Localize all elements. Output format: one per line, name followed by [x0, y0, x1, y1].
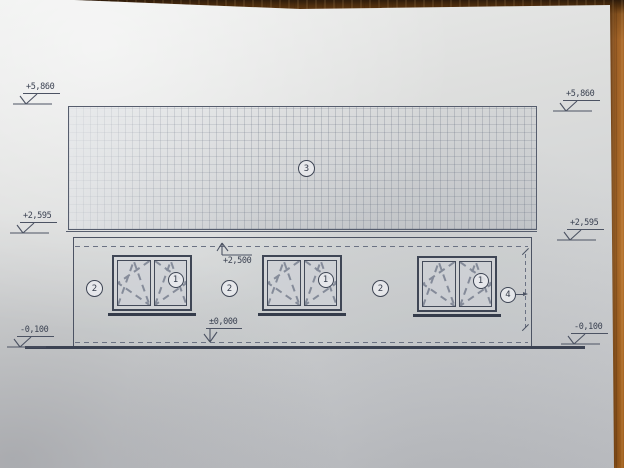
level-arrow-up-icon — [214, 242, 256, 256]
ceiling-level-dashed-line — [75, 246, 528, 247]
level-arrow-icon — [552, 100, 600, 112]
pipe-leader-arrow-icon — [523, 292, 528, 296]
window-sill — [413, 314, 501, 317]
level-arrow-icon — [12, 93, 60, 105]
window-sill — [258, 313, 346, 316]
window: 1 — [112, 255, 192, 311]
roof-callout-number: 3 — [304, 164, 309, 174]
window-sill — [108, 313, 196, 316]
window-sash — [117, 260, 151, 306]
paper-sheet: 3 — [0, 0, 624, 468]
level-arrow-icon — [556, 229, 604, 241]
roof-callout-circle: 3 — [298, 160, 315, 177]
level-value: +2,500 — [223, 256, 256, 266]
wall-callout-number: 2 — [227, 284, 232, 294]
wall-callout-circle: 2 — [372, 280, 389, 297]
level-marker-ridge-left: +5,860 — [12, 82, 60, 105]
level-marker-ceiling: +2,500 — [214, 243, 256, 266]
sash-callout-number: 1 — [323, 275, 328, 285]
pipe-callout-circle: 4 — [500, 287, 516, 303]
level-marker-ground-left: -0,100 — [6, 325, 54, 348]
pipe-dashed-line — [525, 252, 526, 328]
sash-opening-icon — [268, 261, 300, 305]
window: 1 — [262, 255, 342, 311]
ground-line — [25, 346, 585, 349]
level-marker-floor: ±0,000 — [200, 317, 242, 344]
wall-callout-number: 2 — [92, 284, 97, 294]
wall-callout-number: 2 — [378, 284, 383, 294]
level-marker-eaves-left: +2,595 — [9, 211, 57, 234]
wall-callout-circle: 2 — [86, 280, 103, 297]
sash-opening-icon — [423, 262, 455, 306]
window-sash: 1 — [459, 261, 493, 307]
pipe-callout-number: 4 — [505, 290, 510, 300]
level-arrow-icon — [9, 222, 57, 234]
window-sash: 1 — [154, 260, 188, 306]
wall-callout-circle: 2 — [221, 280, 238, 297]
window-sash: 1 — [304, 260, 338, 306]
eaves-line — [66, 231, 537, 232]
level-arrow-down-icon — [200, 328, 242, 344]
sash-callout-circle: 1 — [473, 273, 489, 289]
level-arrow-icon — [6, 336, 54, 348]
sash-callout-circle: 1 — [318, 272, 334, 288]
level-marker-ridge-right: +5,860 — [552, 89, 600, 112]
sash-opening-icon — [118, 261, 150, 305]
floor-level-dashed-line — [75, 342, 528, 343]
sash-callout-number: 1 — [173, 275, 178, 285]
level-arrow-icon — [560, 333, 608, 345]
level-marker-ground-right: -0,100 — [560, 322, 608, 345]
level-marker-eaves-right: +2,595 — [556, 218, 604, 241]
sash-callout-circle: 1 — [168, 272, 184, 288]
window-sash — [422, 261, 456, 307]
building-elevation-drawing: 3 — [0, 0, 624, 468]
window-sash — [267, 260, 301, 306]
sash-callout-number: 1 — [478, 276, 483, 286]
photo-of-elevation-drawing: 3 — [0, 0, 624, 468]
window: 1 — [417, 256, 497, 312]
